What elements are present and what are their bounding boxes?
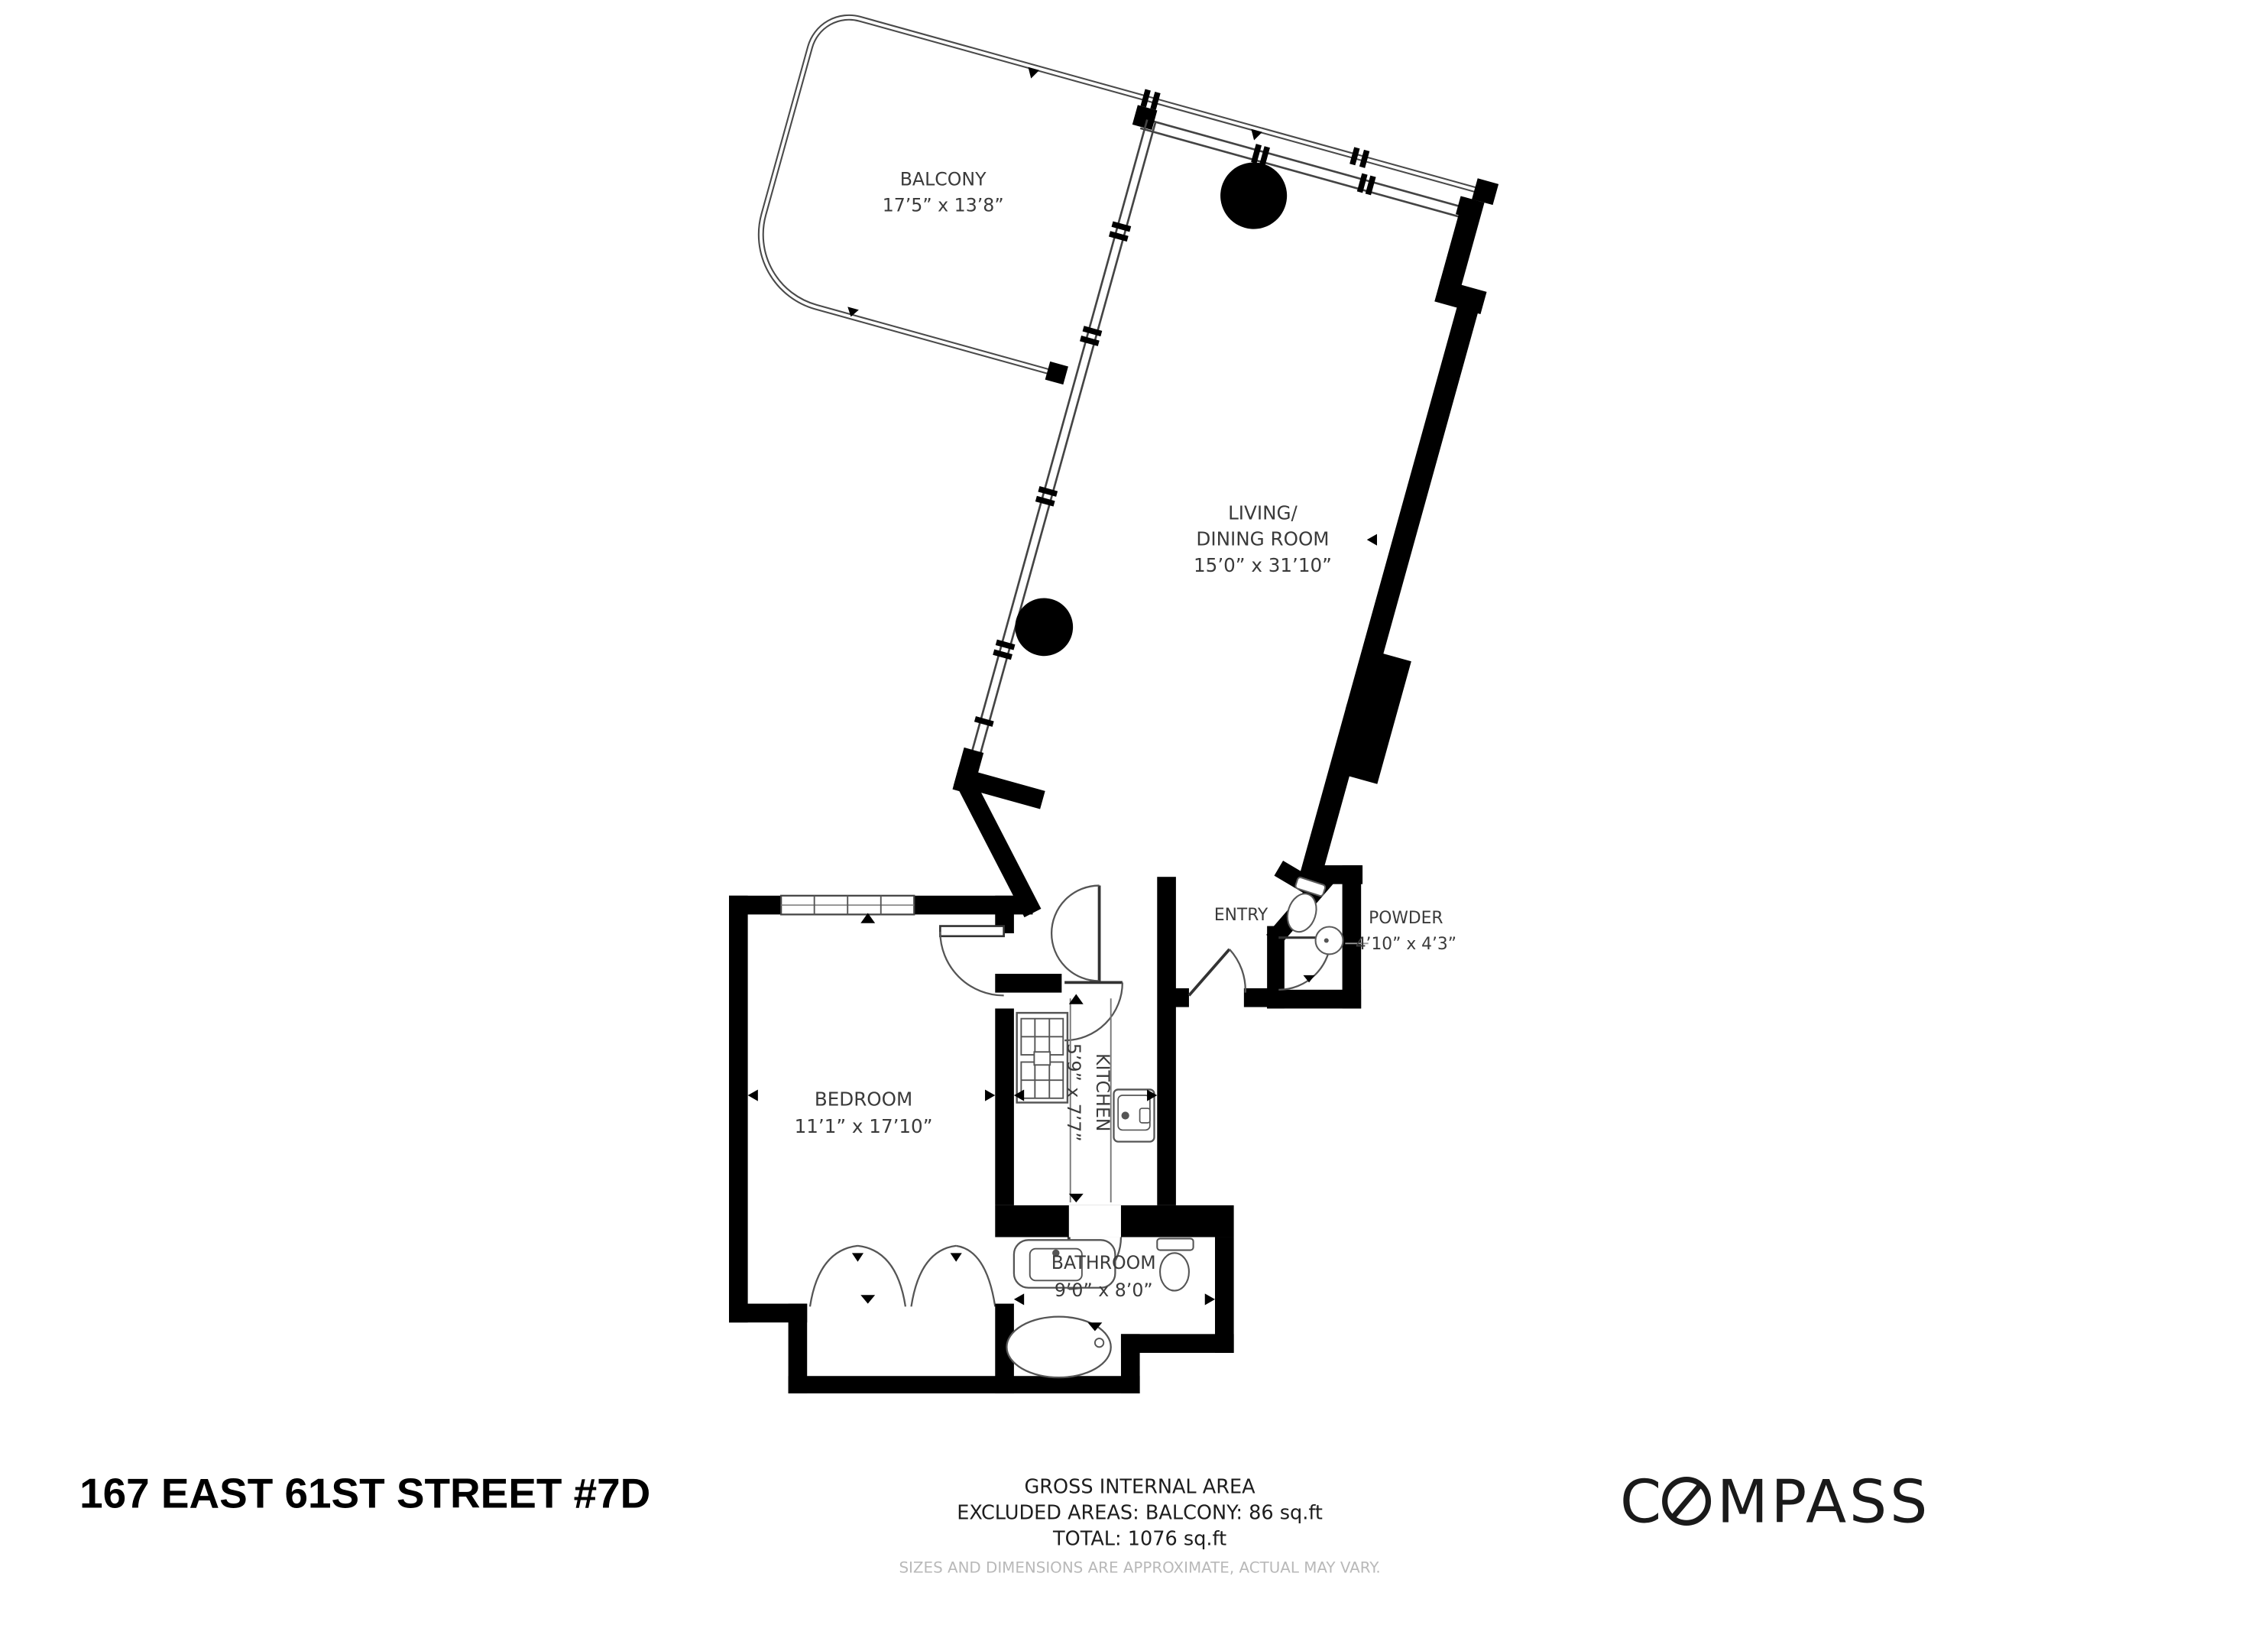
floorplan-drawing: BALCONY 17’5” x 13’8” LIVING/ DINING ROO… xyxy=(0,0,2268,1651)
total-area-line: TOTAL: 1076 sq.ft xyxy=(1052,1528,1226,1551)
living-dims: 15’0” x 31’10” xyxy=(1194,554,1332,576)
compass-logo: C MPASS xyxy=(1620,1468,1930,1536)
entry-front-door-area xyxy=(1163,949,1273,1007)
compass-logo-c: C xyxy=(1620,1468,1664,1536)
floorplan-page: BALCONY 17’5” x 13’8” LIVING/ DINING ROO… xyxy=(0,0,2268,1651)
closet-door-arc-upper xyxy=(1051,886,1099,933)
living-label-line1: LIVING/ xyxy=(1228,502,1298,524)
entry-label: ENTRY xyxy=(1214,906,1268,925)
powder-tick xyxy=(1303,975,1314,982)
compass-logo-rest: MPASS xyxy=(1717,1468,1930,1536)
powder-sink-drain xyxy=(1324,938,1329,942)
page-title: 167 EAST 61ST STREET #7D xyxy=(79,1469,650,1516)
kitchen xyxy=(995,974,1233,1237)
tub-alcove-bottom-wall xyxy=(995,1376,1139,1393)
tub-alcove-right-wall xyxy=(1121,1334,1140,1393)
kitchen-stove xyxy=(1017,1013,1068,1102)
gross-area-line: GROSS INTERNAL AREA xyxy=(1025,1476,1256,1499)
bedroom xyxy=(729,896,1033,1393)
bathroom-toilet xyxy=(1157,1238,1193,1290)
bedroom-closet xyxy=(789,1246,1014,1393)
bathroom-door-gap xyxy=(1069,1205,1121,1237)
bedroom-dims: 11’1” x 17’10” xyxy=(795,1115,933,1137)
bedroom-door-arc xyxy=(940,932,1003,995)
closet-back-wall xyxy=(1157,877,1176,1205)
front-door-leaf xyxy=(1189,949,1230,996)
balcony-label: BALCONY xyxy=(900,168,987,190)
bedroom-label: BEDROOM xyxy=(815,1088,912,1110)
kitchen-dims: 5’9” x 7’7” xyxy=(1063,1043,1084,1142)
bedroom-right-wall-lower xyxy=(995,1008,1014,1205)
balcony-wall-junction-block xyxy=(1045,362,1068,384)
disclaimer-line: SIZES AND DIMENSIONS ARE APPROXIMATE, AC… xyxy=(899,1559,1380,1577)
area-summary: GROSS INTERNAL AREA EXCLUDED AREAS: BALC… xyxy=(899,1476,1380,1577)
compass-needle-icon xyxy=(1674,1487,1699,1516)
kitchen-door-arc xyxy=(1064,982,1123,1040)
powder-sink xyxy=(1316,927,1343,955)
bedroom-left-wall xyxy=(729,896,748,1322)
front-door-arc xyxy=(1230,949,1246,993)
powder-label: POWDER xyxy=(1369,909,1443,928)
kitchen-label-group: KITCHEN 5’9” x 7’7” xyxy=(1063,1043,1113,1142)
bathroom-label: BATHROOM xyxy=(1051,1252,1156,1273)
powder-bottom-wall xyxy=(1267,990,1361,1009)
kitchen-label: KITCHEN xyxy=(1092,1053,1113,1132)
balcony-dims: 17’5” x 13’8” xyxy=(883,194,1004,216)
excluded-areas-line: EXCLUDED AREAS: BALCONY: 86 sq.ft xyxy=(957,1502,1323,1525)
living-label-line2: DINING ROOM xyxy=(1196,528,1329,550)
living-wing xyxy=(627,0,1541,905)
bedroom-window xyxy=(781,896,914,915)
kitchen-top-wall xyxy=(995,974,1061,993)
powder-dims: 4’10” x 4’3” xyxy=(1356,935,1456,954)
bedroom-door-leaf xyxy=(940,926,1003,936)
bathroom-dims: 9’0” x 8’0” xyxy=(1055,1280,1153,1301)
